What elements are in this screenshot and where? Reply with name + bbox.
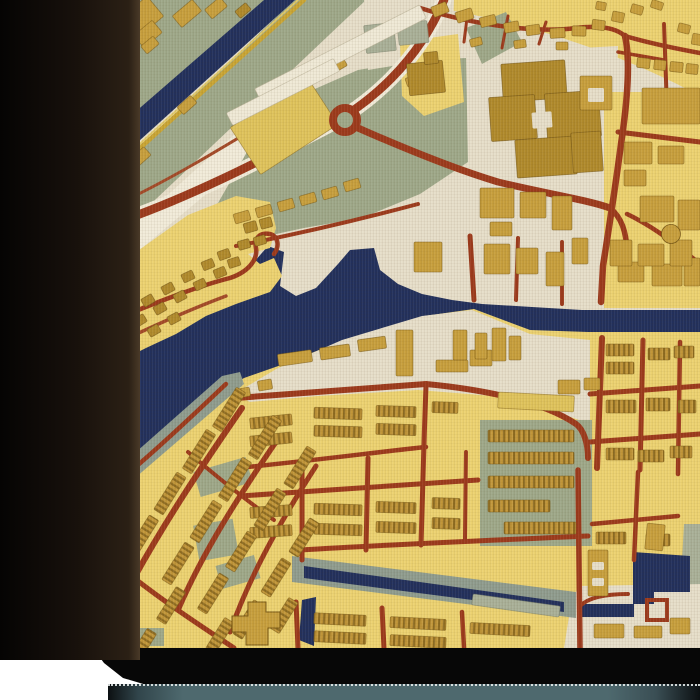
canvas-side-left <box>0 0 140 660</box>
canvas-print-front <box>118 0 700 648</box>
canvas-drop-shadow <box>95 644 700 686</box>
map-artwork <box>118 0 700 648</box>
scene <box>0 0 700 700</box>
floor-strip <box>108 684 700 700</box>
